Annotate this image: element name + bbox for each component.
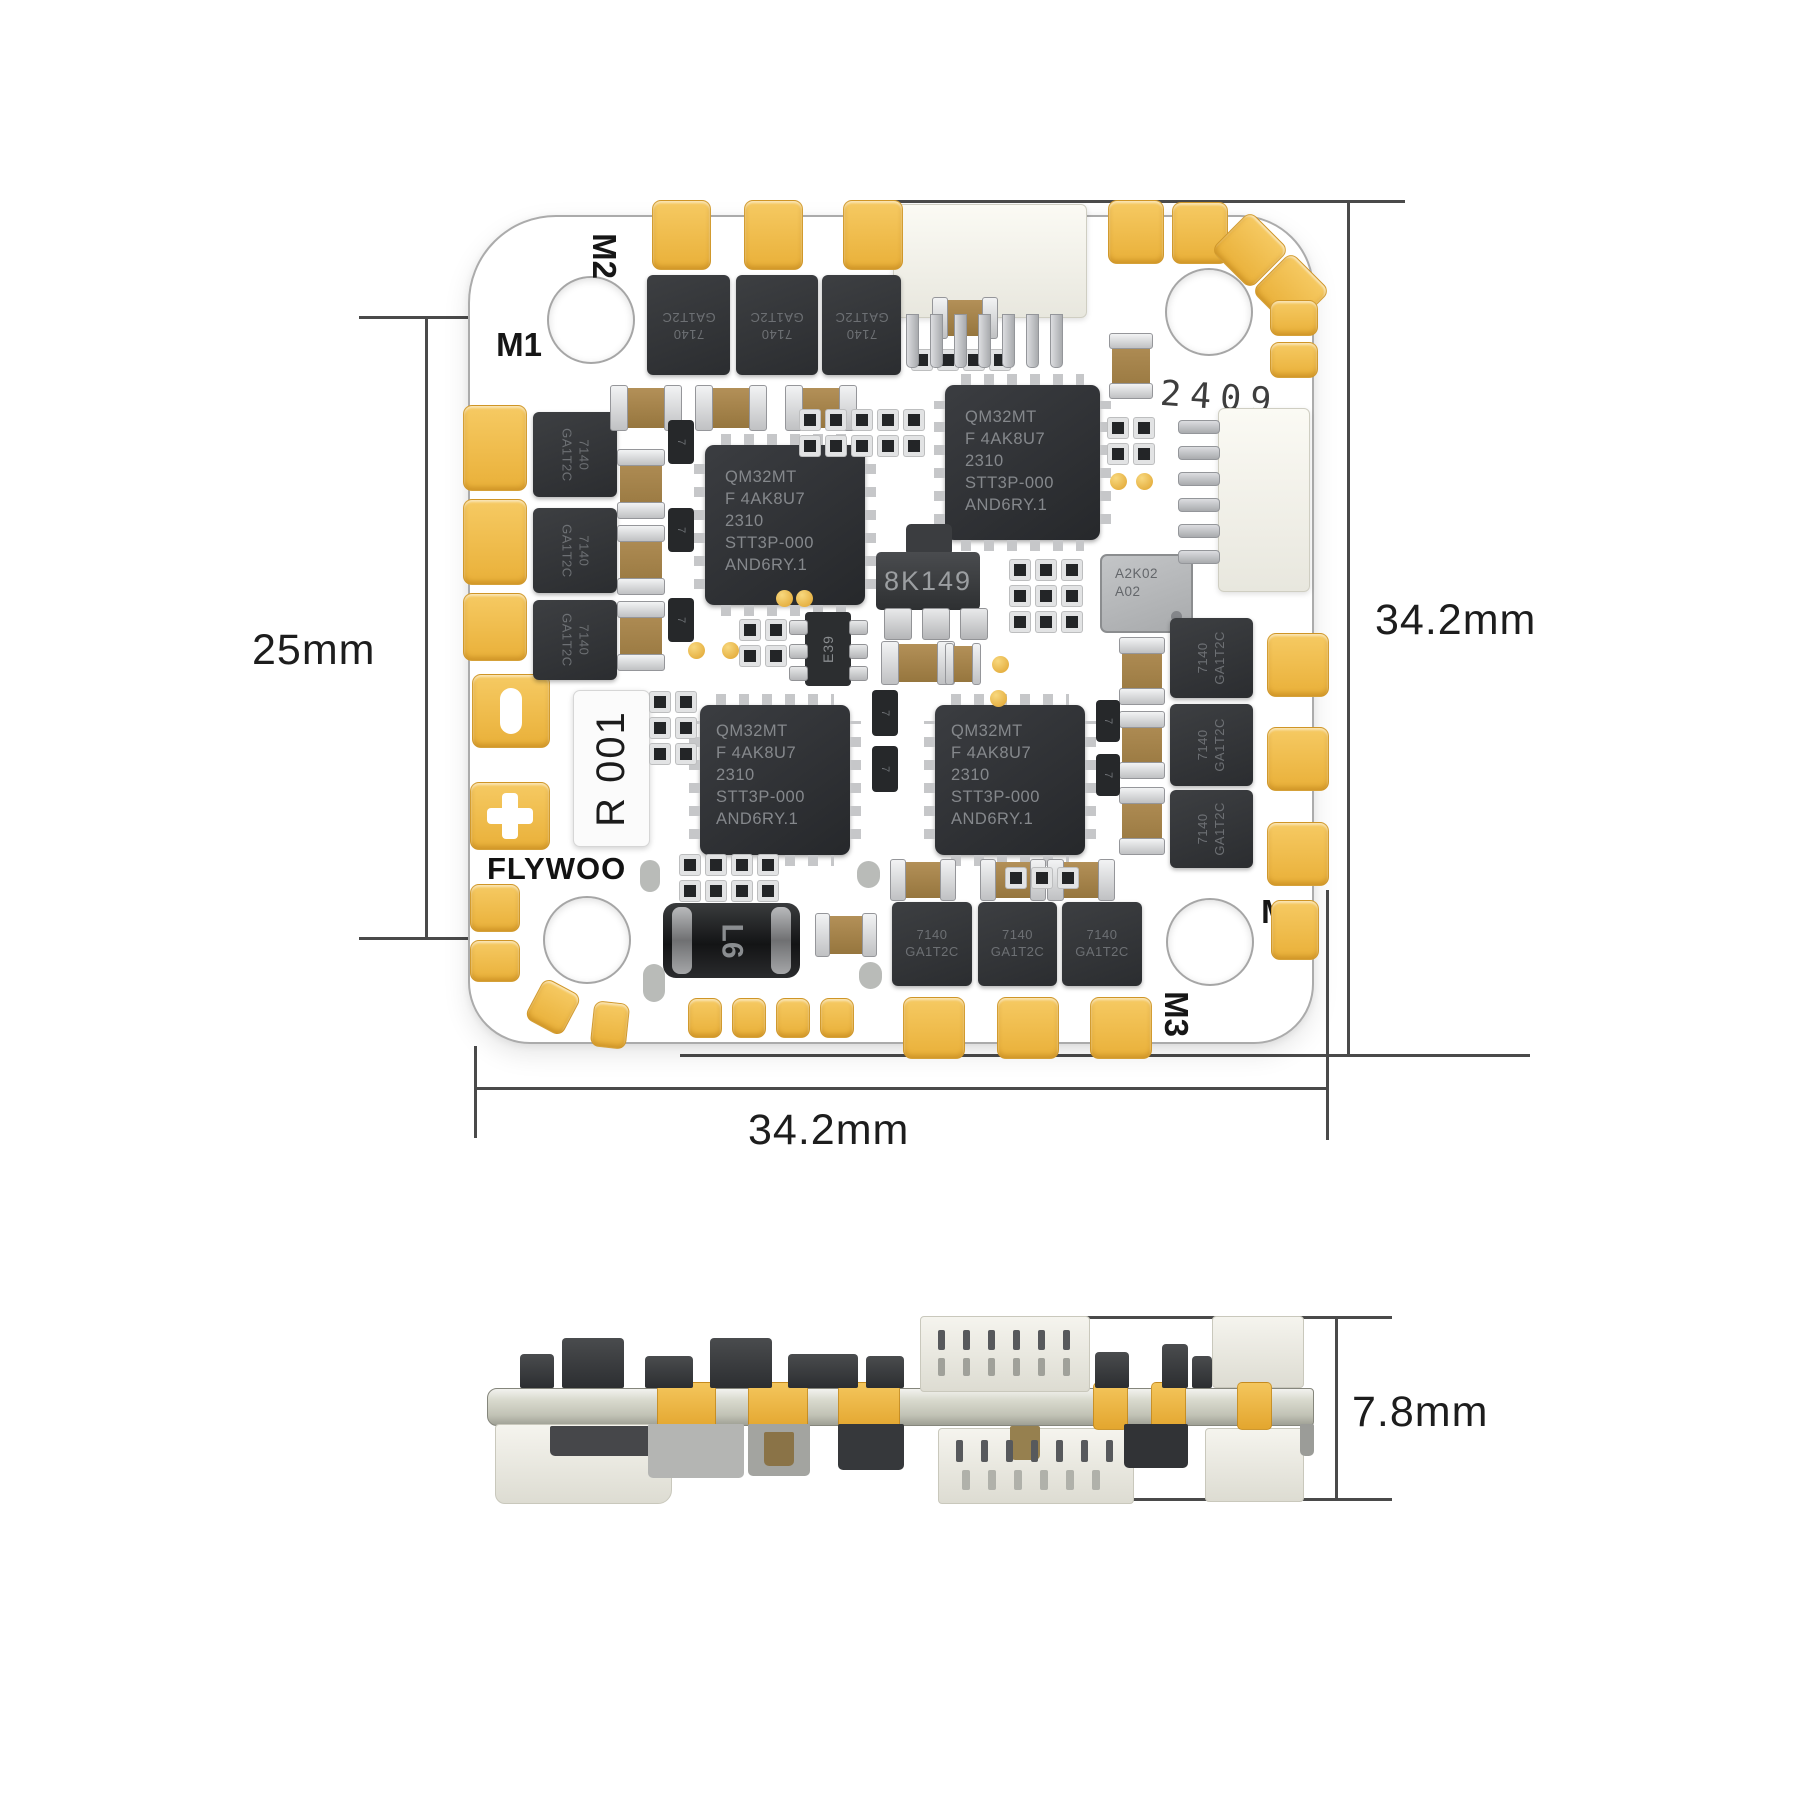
gate-driver-chip: E39: [805, 612, 851, 686]
solder-pad: [744, 200, 803, 270]
inductor: L6: [663, 903, 800, 978]
pcb-side-view: [487, 1388, 1314, 1426]
solder-pad: [470, 940, 520, 982]
chip-marking: QM32MTF 4AK8U72310STT3P-000AND6RY.1: [951, 721, 1040, 831]
smd-passive: [826, 436, 846, 456]
smd-passive: [758, 881, 778, 901]
chip-pins: [1085, 721, 1096, 839]
mosfet-marking: 7140GA1T2C: [991, 927, 1045, 961]
board-width-label: 34.2mm: [748, 1106, 909, 1155]
chip-marking: QM32MTF 4AK8U72310STT3P-000AND6RY.1: [965, 407, 1054, 517]
component-leg: [789, 644, 808, 659]
mosfet-chip: 7140GA1T2C: [647, 275, 730, 375]
smd-passive: [1010, 612, 1030, 632]
smd-passive: [878, 436, 898, 456]
mosfet-marking: 7140GA1T2C: [558, 613, 592, 667]
plus-cross-v: [502, 793, 518, 839]
smd-passive: [732, 855, 752, 875]
connector-slot: [1092, 1470, 1100, 1490]
smd-passive: [1108, 444, 1128, 464]
solder-pad: [903, 997, 965, 1059]
connector-slot: [1038, 1358, 1045, 1376]
inductor-band-right: [771, 907, 791, 974]
via-dot: [688, 642, 705, 659]
side-component: [520, 1354, 554, 1388]
ceramic-capacitor: [818, 916, 874, 954]
smd-passive: [1062, 586, 1082, 606]
serial-sticker: R 001: [573, 690, 650, 847]
regulator-chip: 8K149: [876, 552, 980, 610]
connector-pin: [1178, 446, 1220, 460]
mosfet-chip: 7140GA1T2C: [533, 600, 617, 680]
connector-pin: [1178, 472, 1220, 486]
connector-slot: [962, 1470, 970, 1490]
side-upper-connector: [920, 1316, 1090, 1392]
diode-mark: 7: [675, 439, 687, 445]
mosfet-chip: 7140GA1T2C: [822, 275, 901, 375]
ceramic-capacitor: [1112, 336, 1150, 396]
side-component: [866, 1356, 904, 1388]
castellated-pad: [838, 1382, 900, 1430]
connector-slot: [981, 1440, 988, 1462]
connector-pin: [978, 314, 991, 368]
side-component: [764, 1432, 794, 1466]
smd-passive: [1058, 868, 1078, 888]
solder-pad: [1271, 900, 1319, 960]
mosfet-chip: 7140GA1T2C: [533, 508, 617, 593]
connector-slot: [1040, 1470, 1048, 1490]
motor-label-m2: M2: [585, 233, 623, 279]
mosfet-chip: 7140GA1T2C: [736, 275, 818, 375]
solder-pad: [652, 200, 711, 270]
connector-pin: [954, 314, 967, 368]
mounting-hole-top-right: [1165, 268, 1253, 356]
mosfet-marking: 7140GA1T2C: [558, 524, 592, 578]
smd-passive: [1006, 868, 1026, 888]
motor-label-m3: M3: [1157, 991, 1195, 1037]
side-lower-right-connector: [1205, 1428, 1304, 1502]
extension-line-board-right: [1326, 890, 1329, 1140]
side-component: [645, 1356, 693, 1388]
battery-minus-pad: [472, 674, 550, 748]
smd-passive: [1032, 868, 1052, 888]
smd-passive: [676, 718, 696, 738]
smd-passive: [800, 410, 820, 430]
mosfet-marking: 7140GA1T2C: [905, 927, 959, 961]
smd-passive: [1036, 612, 1056, 632]
smd-passive: [706, 881, 726, 901]
castellated-pad: [748, 1382, 808, 1430]
solder-pad: [1270, 342, 1318, 378]
solder-pad: [1267, 822, 1329, 886]
test-point: [643, 964, 665, 1002]
smd-passive: [766, 620, 786, 640]
mosfet-chip: 7140GA1T2C: [1170, 704, 1253, 786]
smd-passive: [1108, 418, 1128, 438]
smd-passive: [1134, 444, 1154, 464]
solder-pad: [1270, 300, 1318, 336]
serial-text: R 001: [589, 710, 634, 827]
brand-logo: FLYWOO: [487, 851, 626, 887]
connector-slot: [1038, 1330, 1045, 1350]
mosfet-chip: 7140GA1T2C: [978, 902, 1057, 986]
diode-mark: 7: [675, 617, 687, 623]
diode-mark: 7: [1102, 772, 1114, 778]
mosfet-marking: 7140GA1T2C: [835, 308, 889, 342]
component-leg: [960, 608, 988, 640]
smd-passive: [650, 692, 670, 712]
smd-passive: [706, 855, 726, 875]
mosfet-marking: 7140GA1T2C: [662, 308, 716, 342]
side-upper-right-connector: [1212, 1316, 1304, 1388]
qm32mt-chip-2: QM32MTF 4AK8U72310STT3P-000AND6RY.1: [945, 385, 1100, 540]
connector-pin: [906, 314, 919, 368]
smd-diode: 7: [1096, 754, 1120, 796]
smd-diode: 7: [872, 690, 898, 736]
smd-passive: [766, 646, 786, 666]
side-component: [1162, 1344, 1188, 1388]
connector-slot: [938, 1330, 945, 1350]
connector-slot: [1006, 1440, 1013, 1462]
ceramic-capacitor: [698, 388, 764, 428]
stack-height-label: 7.8mm: [1352, 1388, 1488, 1437]
connector-pin: [1026, 314, 1039, 368]
ceramic-capacitor: [620, 604, 662, 668]
chip-pins: [961, 374, 1084, 385]
smd-passive: [650, 718, 670, 738]
ceramic-capacitor: [1122, 640, 1162, 702]
solder-pad: [843, 200, 903, 270]
smd-passive: [1036, 586, 1056, 606]
qm32mt-chip-1: QM32MTF 4AK8U72310STT3P-000AND6RY.1: [705, 445, 865, 605]
smd-passive: [904, 436, 924, 456]
chip-pins: [694, 461, 705, 589]
inductor-band-left: [672, 907, 692, 974]
smd-diode: 7: [668, 598, 694, 642]
ceramic-capacitor: [620, 452, 662, 516]
mosfet-marking: 7140GA1T2C: [750, 308, 804, 342]
connector-slot: [1013, 1358, 1020, 1376]
side-component: [788, 1354, 858, 1388]
smd-diode: 7: [872, 746, 898, 792]
connector-pin: [1178, 498, 1220, 512]
mounting-hole-bottom-right: [1166, 898, 1254, 986]
via-dot: [722, 642, 739, 659]
mosfet-marking: 7140GA1T2C: [1195, 718, 1229, 772]
side-component: [710, 1338, 772, 1388]
smd-passive: [1010, 586, 1030, 606]
hole-pitch-label: 25mm: [252, 626, 375, 675]
connector-slot: [988, 1470, 996, 1490]
mosfet-marking: 7140GA1T2C: [1195, 631, 1229, 685]
castellated-pad: [657, 1382, 716, 1430]
component-leg: [849, 644, 868, 659]
connector-pin: [1178, 524, 1220, 538]
smd-diode: 7: [668, 508, 694, 552]
side-component: [562, 1338, 624, 1388]
via-dot: [990, 690, 1007, 707]
extension-line-board-left: [474, 1046, 477, 1138]
solder-pad: [463, 593, 527, 661]
sensor-line-2: A02: [1115, 583, 1191, 601]
via-dot: [1136, 473, 1153, 490]
via-dot: [776, 590, 793, 607]
connector-pin: [1050, 314, 1063, 368]
connector-slot: [938, 1358, 945, 1376]
solder-pad: [1108, 200, 1164, 264]
solder-pad: [732, 998, 766, 1038]
diode-mark: 7: [675, 527, 687, 533]
gate-driver-marking: E39: [820, 635, 836, 663]
smd-passive: [1062, 612, 1082, 632]
smd-passive: [676, 692, 696, 712]
ceramic-capacitor: [893, 862, 953, 898]
smd-passive: [1062, 560, 1082, 580]
smd-passive: [852, 410, 872, 430]
dimension-line-board-height: [1347, 200, 1350, 1057]
motor-label-m1: M1: [496, 326, 542, 364]
solder-pad: [590, 1000, 631, 1050]
mosfet-chip: 7140GA1T2C: [1170, 790, 1253, 868]
solder-pad: [820, 998, 854, 1038]
connector-slot: [956, 1440, 963, 1462]
diode-mark: 7: [879, 766, 891, 772]
chip-pins: [951, 694, 1069, 705]
via-dot: [796, 590, 813, 607]
connector-pin: [930, 314, 943, 368]
connector-slot: [988, 1330, 995, 1350]
connector-pin: [1178, 420, 1220, 434]
flywoo-esc-dimension-diagram: 25mm 34.2mm 34.2mm 7.8mm M2 M1 M4 M3 R 0…: [0, 0, 1800, 1800]
castellated-pad: [1151, 1382, 1186, 1430]
side-component: [1192, 1356, 1212, 1388]
diode-mark: 7: [879, 710, 891, 716]
smd-passive: [740, 620, 760, 640]
smd-diode: 7: [1096, 700, 1120, 742]
connector-slot: [1106, 1440, 1113, 1462]
component-leg: [849, 666, 868, 681]
chip-pins: [689, 721, 700, 839]
smd-passive: [676, 744, 696, 764]
solder-pad: [470, 884, 520, 932]
inductor-marking: L6: [714, 923, 748, 958]
ceramic-capacitor: [884, 644, 952, 682]
mosfet-chip: 7140GA1T2C: [892, 902, 972, 986]
solder-pad: [463, 499, 527, 585]
side-component: [1300, 1424, 1314, 1456]
chip-marking: QM32MTF 4AK8U72310STT3P-000AND6RY.1: [725, 467, 814, 577]
smd-passive: [904, 410, 924, 430]
chip-pins: [924, 721, 935, 839]
mounting-hole-top-left: [547, 276, 635, 364]
battery-plus-pad: [470, 782, 550, 850]
side-component: [838, 1424, 904, 1470]
ceramic-capacitor: [620, 528, 662, 592]
side-component: [550, 1426, 654, 1456]
via-dot: [1110, 473, 1127, 490]
smd-passive: [1036, 560, 1056, 580]
ceramic-capacitor: [1122, 790, 1162, 852]
board-height-label: 34.2mm: [1375, 596, 1536, 645]
connector-slot: [1014, 1470, 1022, 1490]
chip-pins: [865, 461, 876, 589]
smd-passive: [740, 646, 760, 666]
component-leg: [849, 620, 868, 635]
connector-slot: [963, 1330, 970, 1350]
chip-pins: [961, 540, 1084, 551]
smd-passive: [1010, 560, 1030, 580]
connector-slot: [1063, 1330, 1070, 1350]
right-jst-connector: [1218, 408, 1310, 592]
solder-pad: [997, 997, 1059, 1059]
connector-slot: [1066, 1470, 1074, 1490]
connector-slot: [1013, 1330, 1020, 1350]
sensor-line-1: A2K02: [1115, 565, 1191, 583]
chip-pins: [716, 694, 834, 705]
component-leg: [789, 666, 808, 681]
smd-passive: [732, 881, 752, 901]
ceramic-capacitor: [1122, 714, 1162, 776]
solder-pad: [1090, 997, 1152, 1059]
connector-pin: [1002, 314, 1015, 368]
mounting-hole-bottom-left: [543, 896, 631, 984]
mosfet-chip: 7140GA1T2C: [533, 412, 617, 497]
solder-pad: [776, 998, 810, 1038]
component-leg: [922, 608, 950, 640]
test-point: [857, 861, 880, 888]
side-component: [648, 1424, 744, 1478]
side-component: [1095, 1352, 1129, 1388]
component-leg: [789, 620, 808, 635]
smd-passive: [1134, 418, 1154, 438]
mosfet-chip: 7140GA1T2C: [1062, 902, 1142, 986]
test-point: [859, 962, 882, 989]
solder-pad: [1267, 727, 1329, 791]
dimension-line-stack-height: [1335, 1316, 1338, 1501]
smd-passive: [758, 855, 778, 875]
mosfet-chip: 7140GA1T2C: [1170, 618, 1253, 698]
connector-slot: [1031, 1440, 1038, 1462]
connector-slot: [1081, 1440, 1088, 1462]
smd-passive: [826, 410, 846, 430]
solder-pad: [688, 998, 722, 1038]
ceramic-capacitor: [948, 646, 978, 682]
diode-mark: 7: [1102, 718, 1114, 724]
chip-pins: [850, 721, 861, 839]
connector-slot: [1056, 1440, 1063, 1462]
chip-pins: [934, 401, 945, 524]
dimension-line-hole-pitch: [425, 316, 428, 940]
connector-pin: [1178, 550, 1220, 564]
smd-passive: [680, 855, 700, 875]
mosfet-marking: 7140GA1T2C: [1195, 802, 1229, 856]
connector-slot: [963, 1358, 970, 1376]
qm32mt-chip-3: QM32MTF 4AK8U72310STT3P-000AND6RY.1: [700, 705, 850, 855]
castellated-pad: [1237, 1382, 1272, 1430]
mosfet-marking: 7140GA1T2C: [1075, 927, 1129, 961]
connector-slot: [988, 1358, 995, 1376]
solder-pad: [463, 405, 527, 491]
smd-passive: [680, 881, 700, 901]
dimension-line-board-width: [474, 1087, 1329, 1090]
chip-marking: QM32MTF 4AK8U72310STT3P-000AND6RY.1: [716, 721, 805, 831]
castellated-pad: [1093, 1382, 1128, 1430]
smd-diode: 7: [668, 420, 694, 464]
test-point: [640, 860, 660, 892]
minus-slot: [500, 688, 522, 734]
smd-passive: [878, 410, 898, 430]
side-component: [1124, 1424, 1188, 1468]
connector-slot: [1063, 1358, 1070, 1376]
solder-pad: [1267, 633, 1329, 697]
mosfet-marking: 7140GA1T2C: [558, 428, 592, 482]
via-dot: [992, 656, 1009, 673]
smd-passive: [800, 436, 820, 456]
smd-passive: [852, 436, 872, 456]
smd-passive: [650, 744, 670, 764]
qm32mt-chip-4: QM32MTF 4AK8U72310STT3P-000AND6RY.1: [935, 705, 1085, 855]
component-leg: [884, 608, 912, 640]
